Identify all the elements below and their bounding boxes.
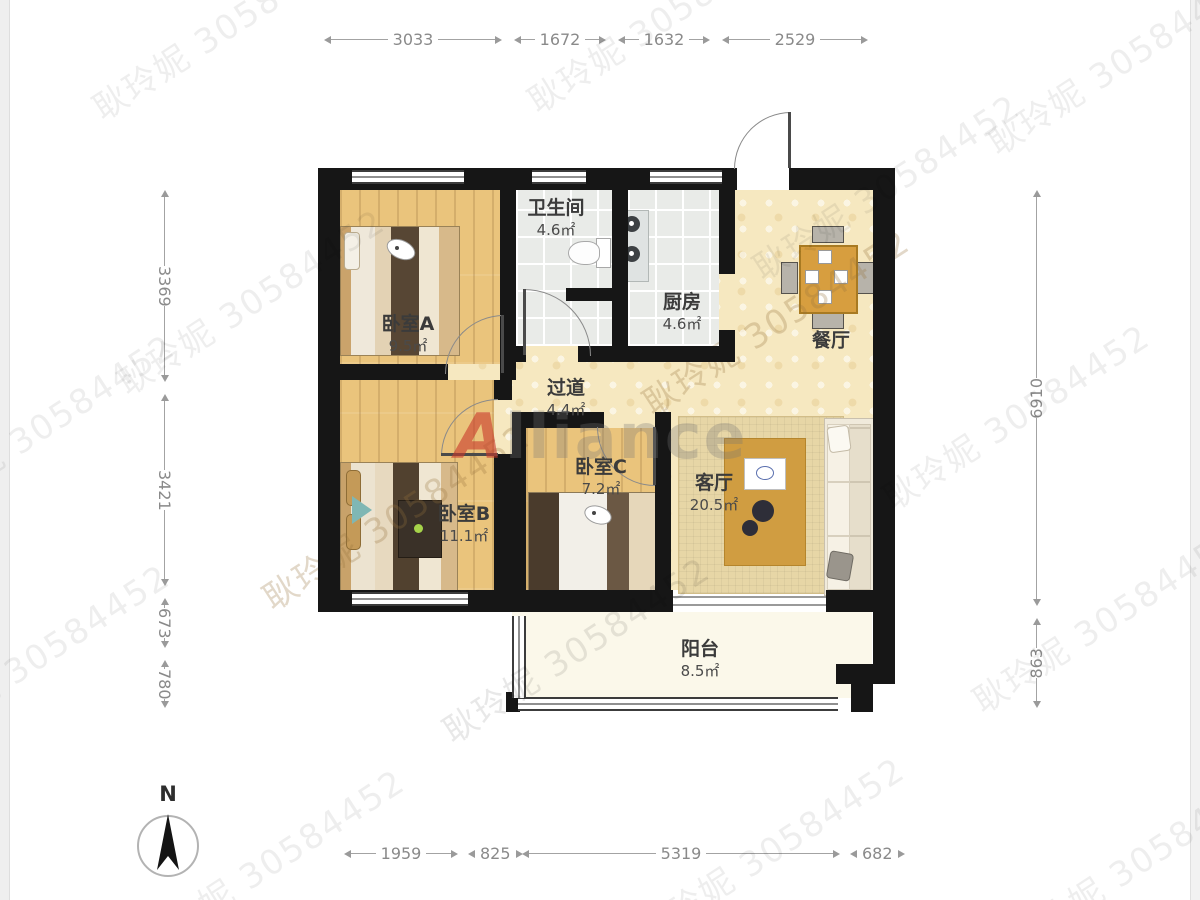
dining-name: 餐厅 [812,329,850,354]
wall-bedroom-b-east-upper [494,380,512,400]
dim-top-2-label: 1672 [540,30,581,49]
wall-kitchen-dining-upper [719,190,735,274]
floorplan-canvas: 卧室A 9.5㎡ 卫生间 4.6㎡ 厨房 4.6㎡ 餐厅 过道 4.4㎡ 卧室B… [0,0,1200,900]
stove-burner-2-dot [629,251,634,256]
watermark-text: 耿玲妮 30584452 [872,310,1159,520]
left-edge-band [0,0,10,900]
window-kitchen [650,170,722,184]
dim-top-1-label: 3033 [393,30,434,49]
watermark-text: 耿玲妮 30584452 [627,743,914,900]
dining-chair-bottom [812,312,844,329]
bathroom-area: 4.6㎡ [537,221,576,241]
kitchen-name: 厨房 [663,290,701,315]
balcony-name: 阳台 [681,637,719,662]
bedroom-a-decor-dot [395,246,399,250]
arrow-left-icon [320,36,331,44]
room-label-living: 客厅 20.5㎡ [690,471,738,515]
hallway-name: 过道 [547,376,585,401]
arrow-down-icon [161,375,169,386]
entry-door-leaf [788,112,791,168]
dim-top-3: 1632 [614,30,714,49]
arrow-right-icon [495,36,506,44]
bedroom-c-name: 卧室C [575,455,627,480]
dim-right-1-label: 6910 [1027,378,1046,419]
watermark-text: 耿玲妮 30584452 [517,0,804,123]
bedroom-b-cabinet-light [414,524,423,533]
dim-bottom-1-label: 1959 [381,844,422,863]
bedroom-a-name: 卧室A [382,312,435,337]
room-label-dining: 餐厅 [812,329,850,354]
arrow-up-icon [161,186,169,197]
living-name: 客厅 [695,471,733,496]
wall-kitchen-south [612,346,735,362]
balcony-area: 8.5㎡ [681,662,720,682]
dim-top-1: 3033 [320,30,506,49]
dim-left-1-label: 3369 [155,266,174,307]
dim-top-3-label: 1632 [644,30,685,49]
living-area: 20.5㎡ [690,496,738,516]
wall-bedroom-b-east-lower [494,454,512,590]
watermark-text: 耿玲妮 30584452 [997,753,1200,900]
tray-decor [756,466,774,480]
sofa-pillow-bottom [826,550,854,582]
wall-balcony-right [851,684,873,712]
dim-left-4-label: 780 [155,669,174,700]
dim-left-2-label: 3421 [155,470,174,511]
dim-bottom-2-label: 825 [480,844,511,863]
dim-top-2: 1672 [510,30,610,49]
wall-balcony-step [836,664,895,684]
bedroom-b-area: 11.1㎡ [440,527,488,547]
wall-bedroom-c-east [655,412,671,590]
room-label-bedroom-b: 卧室B 11.1㎡ [438,502,490,546]
entry-door-arc [734,112,791,169]
kettle-large [752,500,774,522]
bedroom-a-pillow [344,232,360,270]
compass-north-label: N [159,782,177,806]
compass: N [126,782,210,892]
dim-right-2: 863 [1022,614,1051,712]
dim-top-4-label: 2529 [775,30,816,49]
room-label-balcony: 阳台 8.5㎡ [681,637,720,681]
dim-right-2-label: 863 [1027,648,1046,679]
hallway-area: 4.4㎡ [547,401,586,421]
bedroom-c-area: 7.2㎡ [582,480,621,500]
dim-bottom-1: 1959 [340,844,462,863]
dining-chair-right [857,262,874,294]
room-label-bedroom-a: 卧室A 9.5㎡ [382,312,435,356]
kettle-small [742,520,758,536]
bathroom-door-leaf [523,289,526,355]
dim-left-3-label: 673 [155,608,174,639]
dining-plate-3 [834,270,848,284]
toilet-bowl [568,241,600,265]
wall-bathroom-kitchen [612,190,628,346]
bedroom-b-door-leaf [441,453,498,456]
dim-right-1: 6910 [1022,186,1051,610]
dim-left-4: 780 [150,656,179,712]
dining-chair-top [812,226,844,243]
dining-chair-left [781,262,798,294]
dim-bottom-4: 682 [846,844,894,863]
wall-kitchen-dining-lower [719,330,735,362]
dim-left-2: 3421 [150,390,179,590]
bedroom-b-name: 卧室B [438,502,490,527]
window-bedroom-b [352,592,468,606]
wall-left [318,168,340,612]
wall-right [873,168,895,664]
balcony-sliding-door [673,596,826,606]
bedroom-b-blanket-accent [352,496,372,524]
wall-bedroom-a-b [318,364,448,380]
bedroom-c-pillow-dot [592,511,596,515]
sofa-pillow-top [826,425,851,454]
dim-left-3: 673 [150,594,179,652]
right-edge-band [1190,0,1200,900]
dining-plate-2 [805,270,819,284]
dining-plate-1 [818,250,832,264]
wall-bedroom-c-west [512,412,526,590]
watermark-text: 耿玲妮 30584452 [977,0,1200,165]
dim-bottom-2: 825 [464,844,516,863]
watermark-text: 耿玲妮 30584452 [962,513,1200,723]
dining-plate-4 [818,290,832,304]
window-bedroom-a [352,170,464,184]
room-label-bathroom: 卫生间 4.6㎡ [527,196,584,240]
dim-bottom-3-label: 5319 [661,844,702,863]
kitchen-area: 4.6㎡ [663,315,702,335]
dim-top-4: 2529 [718,30,872,49]
room-label-hallway: 过道 4.4㎡ [547,376,586,420]
window-balcony-left [512,616,526,698]
window-bathroom [532,170,586,184]
stove-burner-1-dot [629,221,634,226]
bedroom-c-door-leaf [653,427,656,485]
dim-bottom-4-label: 682 [862,844,893,863]
wall-bottom-bedroom-c [510,590,673,612]
wall-bottom-living [826,590,873,612]
bedroom-a-door-leaf [501,315,504,373]
wall-bathroom-stub [566,288,612,301]
dim-bottom-3: 5319 [518,844,844,863]
dim-left-1: 3369 [150,186,179,386]
room-label-kitchen: 厨房 4.6㎡ [663,290,702,334]
window-balcony-front [518,697,838,711]
bathroom-name: 卫生间 [527,196,584,221]
bedroom-a-area: 9.5㎡ [389,337,428,357]
room-label-bedroom-c: 卧室C 7.2㎡ [575,455,627,499]
watermark-text: 耿玲妮 30584452 [82,0,369,130]
compass-north-icon [133,806,203,880]
